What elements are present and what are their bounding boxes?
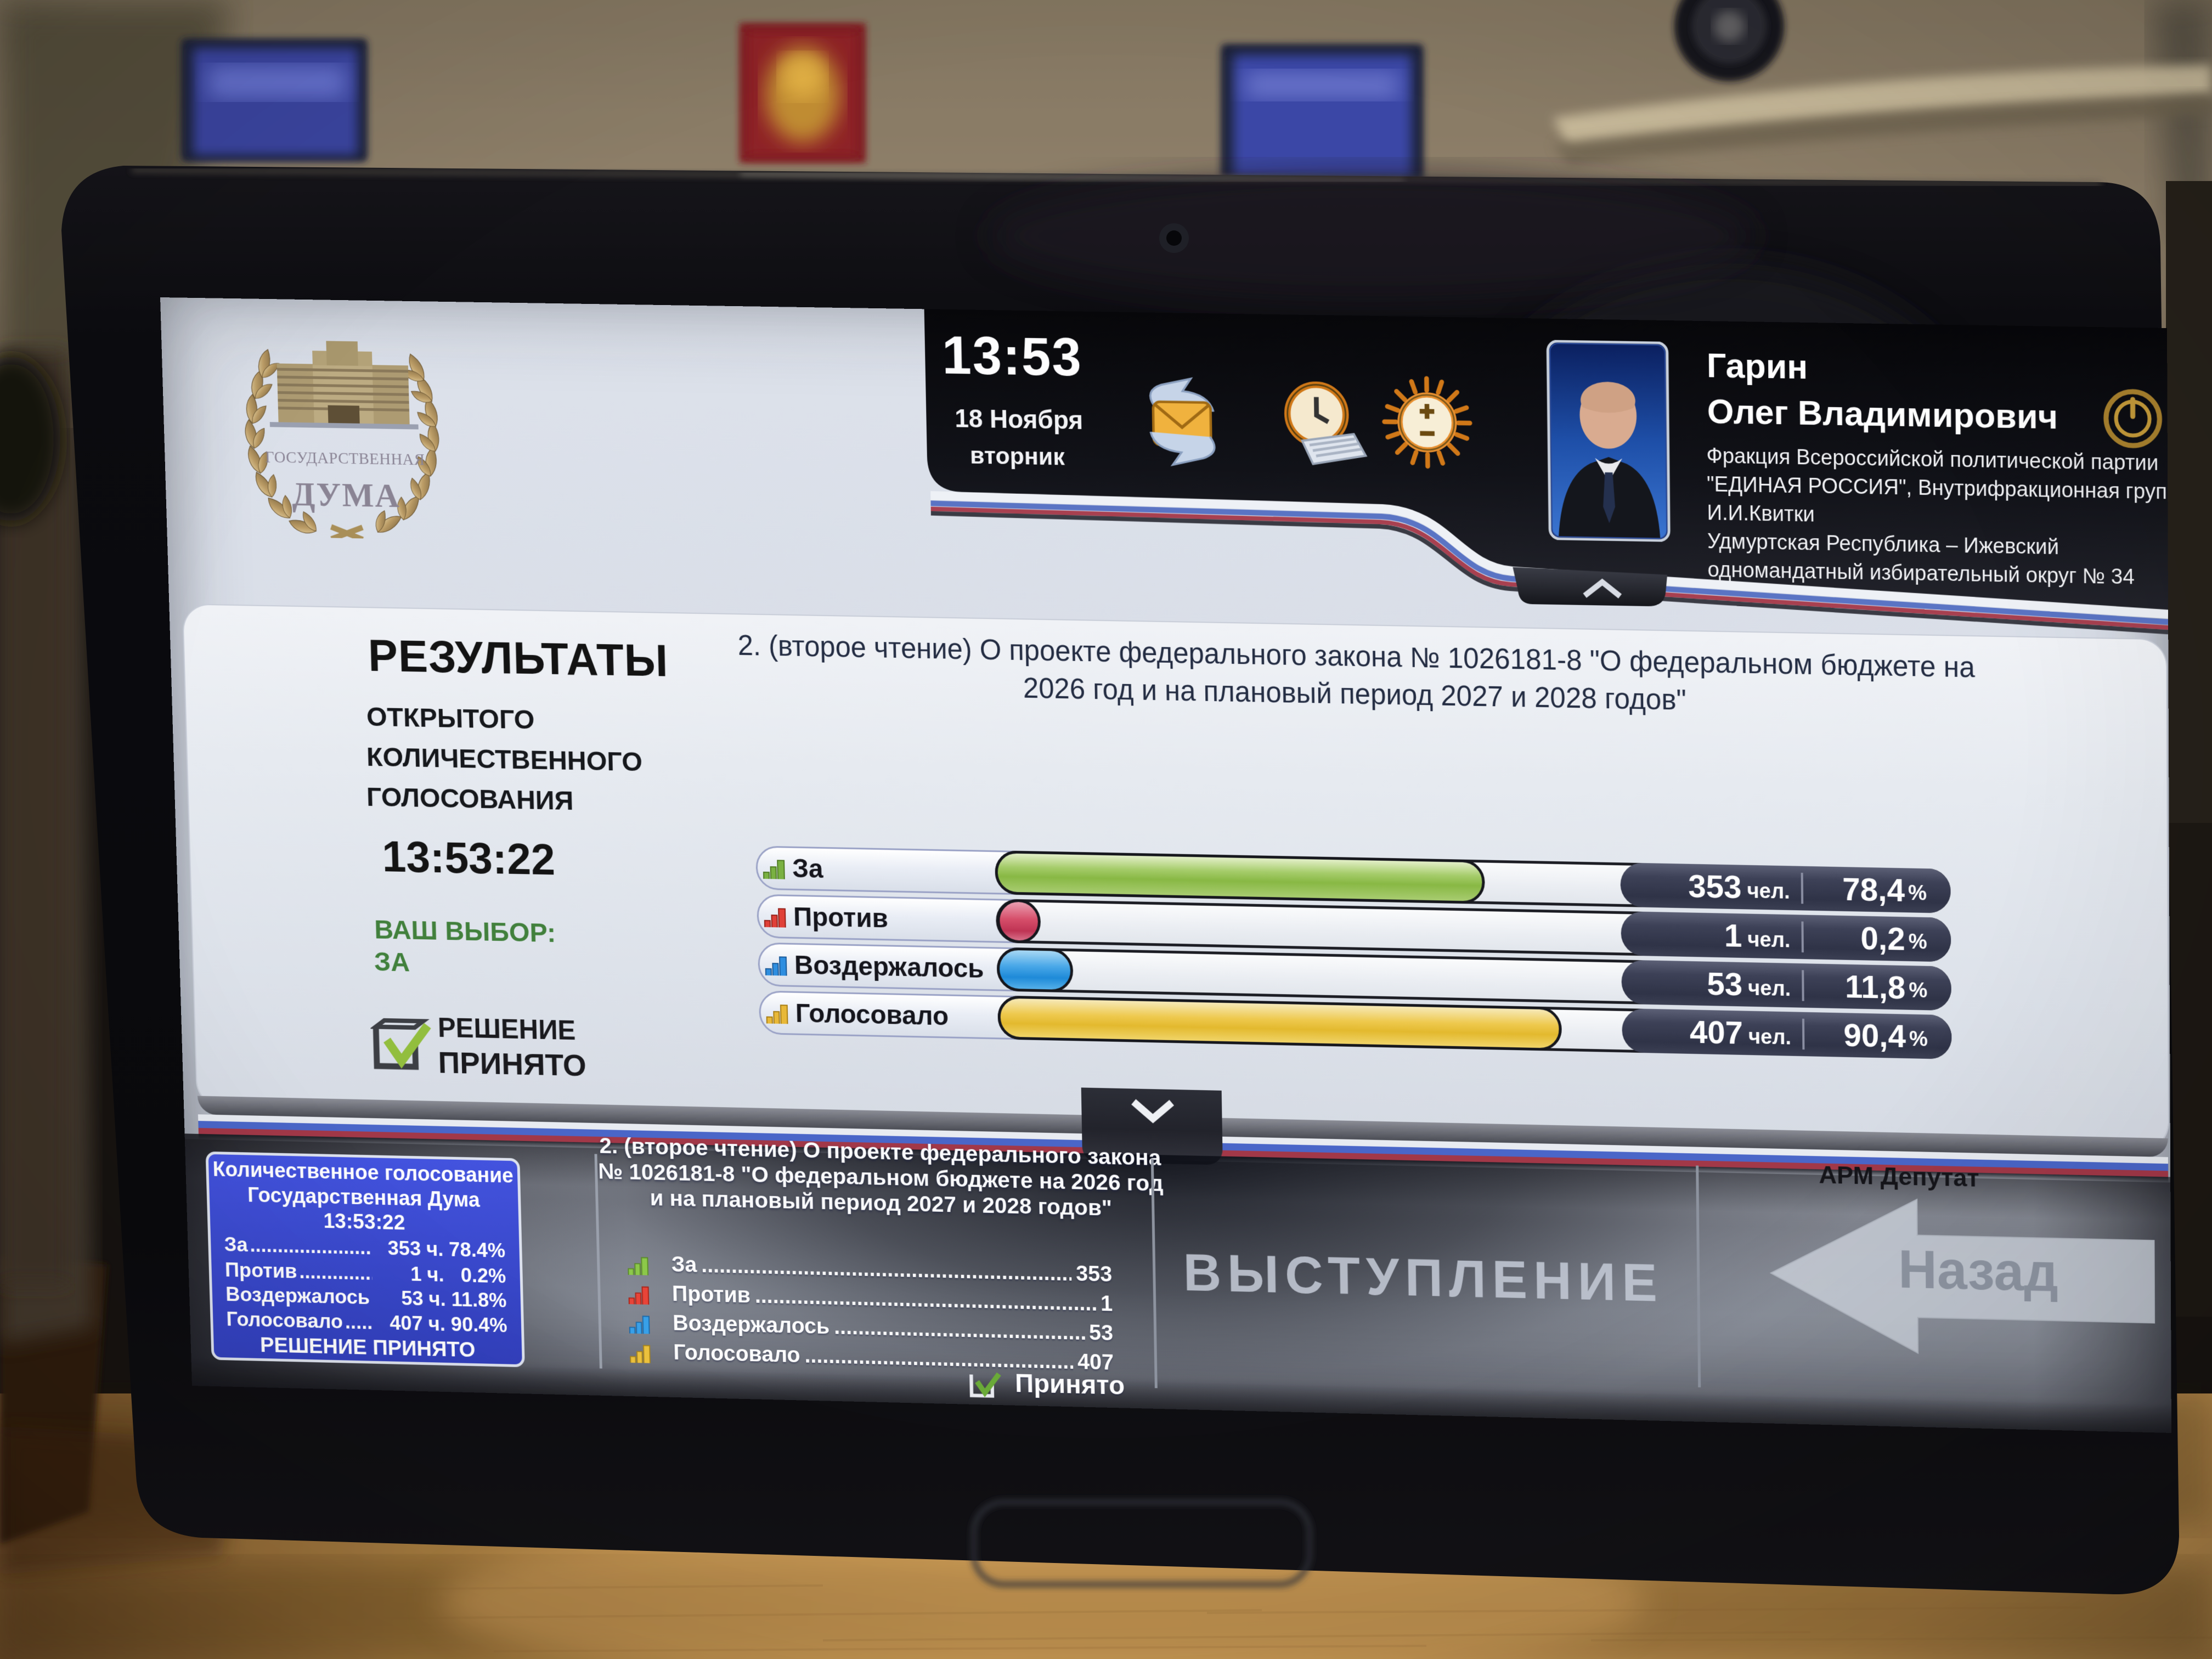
svg-text:ДУМА: ДУМА: [291, 476, 400, 515]
svg-text:ГОСУДАРСТВЕННАЯ: ГОСУДАРСТВЕННАЯ: [265, 448, 425, 469]
